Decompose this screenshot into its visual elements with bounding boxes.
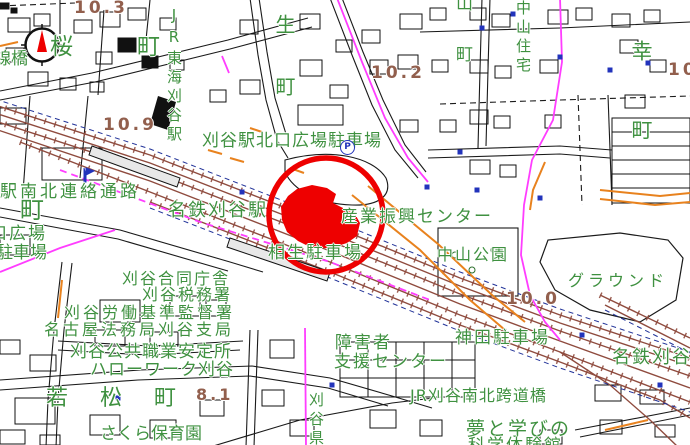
map-viewport[interactable]: 10.3 桜町 線橋 JR東海刈谷駅 刈谷駅北口広場駐車場 P 10.9 駅南北… <box>0 0 690 445</box>
station-label-jr-kariya: JR東海刈谷駅 <box>166 6 181 145</box>
elevation-label: 10 <box>668 62 690 79</box>
facility-label-kagaku-taikenkan: 科学体験館 <box>468 438 563 445</box>
plaza-label: 口広場 <box>0 226 47 243</box>
nursery-label-sakura: さくら保育園 <box>100 426 202 443</box>
parking-symbol: P <box>340 140 355 155</box>
facility-label-sangyo-center: 産業振興センター <box>341 209 493 226</box>
elevation-label: 10.9 <box>103 117 157 134</box>
park-label-nakayama: 中山公園 <box>437 247 509 263</box>
district-label-wakamatsucho: 若松町 <box>46 388 208 410</box>
elevation-label: 10.2 <box>371 65 425 82</box>
elevation-label: 10.0 <box>506 291 560 308</box>
district-label-seicho: 生町 <box>274 14 294 138</box>
parking-label-left: 駐車場 <box>0 245 47 262</box>
housing-label-nakayama-jutaku: 中山住宅 <box>515 0 530 76</box>
office-label-rodokijun: 刈谷労働基準監督署 <box>64 305 235 321</box>
bridge-label-kodokyo: JR刈谷南北跨道橋 <box>410 388 547 404</box>
facility-label-shien-center: 支援センター <box>334 354 448 371</box>
office-label-zeimusho: 刈谷税務署 <box>142 287 232 303</box>
station-label-meitetsu-partial: 名鉄刈谷 <box>612 349 690 367</box>
district-label-saiwaicho: 幸町 <box>630 40 651 198</box>
parking-label-aioi: 相生駐車場 <box>268 245 363 262</box>
label-kariya-partial: 刈谷県 <box>308 392 323 445</box>
district-label-machi: 町 <box>20 198 44 222</box>
office-label-homukyoku: 名古屋法務局刈谷支局 <box>44 322 234 338</box>
office-label-hellowork: ハローワーク刈谷 <box>90 362 234 379</box>
station-label-meitetsu-kariya: 名鉄刈谷駅 <box>168 202 268 220</box>
elevation-label: 10.3 <box>74 0 128 17</box>
facility-label-shogaisha: 障害者 <box>335 335 392 352</box>
elevation-label: 8.1 <box>196 387 233 403</box>
north-arrow <box>37 30 47 52</box>
ground-label: グラウンド <box>568 273 668 289</box>
bridge-label-senkyobashi: 線橋 <box>0 51 28 68</box>
office-label-shokuan: 刈谷公共職業安定所 <box>70 344 232 361</box>
district-label-sakuracho: 桜町 <box>50 36 224 59</box>
parking-label-kanda: 神田駐車場 <box>455 330 550 347</box>
district-label-yamacho: 山町 <box>453 0 470 96</box>
